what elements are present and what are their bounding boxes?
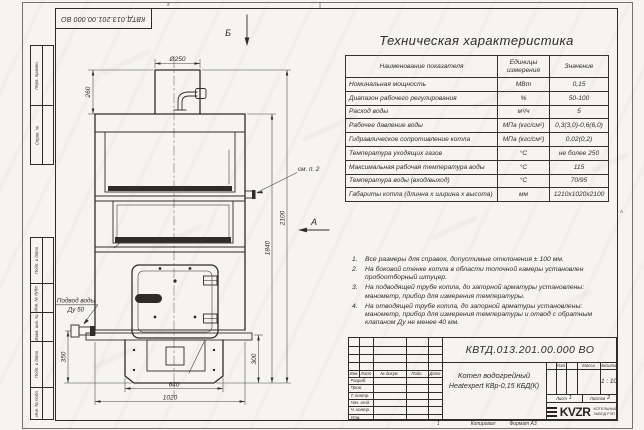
furnace-door — [132, 265, 218, 338]
scale-label: Масштаб — [600, 362, 618, 369]
product-name-line2: Heatexpert КВр-0,15 КБД(К) — [442, 382, 546, 390]
callout-see-note: см. п. 2 — [298, 166, 320, 173]
mass-label: Масса — [577, 362, 600, 369]
water-supply-dn: Ду 50 — [67, 307, 85, 314]
view-arrows: Б А — [225, 15, 329, 232]
spec-header-row: Наименование показателя Единицы измерени… — [346, 56, 609, 78]
logo-bars-icon — [547, 407, 557, 417]
col-units-header: Единицы измерения — [498, 56, 550, 78]
col-podp: Подп. — [406, 370, 428, 377]
grid-line — [373, 338, 374, 421]
title-block: Изм. Лист № докум. Подп. Дата Разраб. Пр… — [348, 337, 617, 420]
spec-units: МПа (кгс/см²) — [498, 133, 550, 147]
spec-name: Габариты котла (длинна х ширина х высота… — [346, 188, 498, 202]
sheet-cell: Лист 1 — [546, 394, 582, 402]
spec-name: Диапазон рабочего регулирования — [346, 91, 498, 105]
note-item: На боковой стенке котла в области топочн… — [350, 266, 610, 283]
product-name-line1: Котел водогрейный — [442, 371, 546, 380]
drawing-sheet: КВТД.013.201.00.000 ВО 2 А Перв. примен.… — [0, 0, 644, 430]
note-item: На подводящей трубе котла, до запорной а… — [350, 284, 610, 301]
sign-row-nkontr: Н. контр. — [351, 406, 372, 413]
spec-row: Габариты котла (длинна х ширина х высота… — [346, 188, 609, 202]
spec-row: Диапазон рабочего регулирования%50-100 — [346, 91, 609, 105]
product-name: Котел водогрейный Heatexpert КВр-0,15 КБ… — [442, 362, 546, 421]
door-hinge — [204, 314, 218, 323]
company-logo: KVZR КОТЕЛЬНЫЙ ЗАВОД РЭП — [546, 402, 618, 421]
spec-name: Расход воды — [346, 105, 498, 119]
dim-total-height: 2100 — [280, 210, 287, 226]
spec-value: 0,02(0,2) — [550, 133, 609, 147]
spec-row: Расход водым³/ч5 — [346, 105, 609, 119]
spec-value: 0,3(3,0)-0,6(6,0) — [550, 119, 609, 133]
spec-value: не более 250 — [550, 146, 609, 160]
door-handle — [135, 294, 162, 303]
technical-notes: Все размеры для справок, допустимые откл… — [350, 256, 610, 329]
spec-units: °С — [498, 146, 550, 160]
spec-value: 1210х1020х2100 — [550, 188, 609, 202]
doc-number: КВТД.013.201.00.000 ВО — [442, 338, 618, 362]
spec-units: МПа (кгс/см²) — [498, 119, 550, 133]
sampling-fitting — [245, 190, 256, 199]
grid-line — [349, 354, 442, 355]
spec-value: 115 — [550, 160, 609, 174]
logo-subtitle-line2: ЗАВОД РЭП — [593, 412, 617, 417]
loading-door — [113, 201, 233, 248]
dim-body-height: 1840 — [265, 240, 272, 255]
water-supply-label: Подвод воды — [57, 297, 96, 305]
spec-units: % — [498, 91, 550, 105]
spec-table-title: Техническая характеристика — [345, 33, 608, 48]
spec-name: Максимальная рабочая температура воды — [346, 160, 498, 174]
spec-row: Рабочее давление водыМПа (кгс/см²)0,3(3,… — [346, 119, 609, 133]
chimney — [155, 70, 206, 114]
spec-row: Температура воды (вход/выход)°С70/95 — [346, 174, 609, 188]
sheet-label: Лист — [556, 396, 567, 401]
spec-value: 70/95 — [550, 174, 609, 188]
col-name-header: Наименование показателя — [346, 56, 498, 78]
view-label-b: Б — [225, 28, 231, 38]
spec-value: 5 — [550, 105, 609, 119]
spec-units: м³/ч — [498, 105, 550, 119]
sign-row-prov: Пров. — [351, 384, 372, 391]
logo-subtitle: КОТЕЛЬНЫЙ ЗАВОД РЭП — [593, 407, 617, 416]
sign-row-razrab: Разраб. — [351, 377, 372, 384]
spec-value: 0,15 — [550, 78, 609, 92]
sheets-label: Листов — [590, 396, 605, 401]
col-value-header: Значение — [550, 56, 609, 78]
lit-label: Лит. — [546, 362, 577, 369]
format-label: Формат А3 — [502, 421, 544, 427]
spec-row: Гидравлическое сопротивление котлаМПа (к… — [346, 133, 609, 147]
sheets-cell: Листов 2 — [582, 394, 618, 402]
spec-value: 50-100 — [550, 91, 609, 105]
col-izm: Изм. — [349, 370, 359, 377]
logo-text: KVZR — [560, 405, 591, 419]
dim-chimney-height: 260 — [85, 86, 92, 98]
fold-mark: 1 — [437, 421, 440, 427]
sign-row-utv: Утв. — [351, 414, 372, 421]
spec-name: Температура воды (вход/выход) — [346, 174, 498, 188]
spec-name: Рабочее давление воды — [346, 119, 498, 133]
col-list: Лист — [359, 370, 373, 377]
boiler-body — [86, 114, 252, 340]
spec-name: Номинальная мощность — [346, 78, 498, 92]
spec-row: Максимальная рабочая температура воды°С1… — [346, 160, 609, 174]
spec-table: Наименование показателя Единицы измерени… — [345, 55, 609, 202]
grid-line — [406, 338, 407, 421]
col-data: Дата — [428, 370, 442, 377]
spec-units: мм — [498, 188, 550, 202]
door-hinge — [204, 276, 218, 285]
spec-row: Температура уходящих газов°Сне более 250 — [346, 146, 609, 160]
spec-name: Температура уходящих газов — [346, 146, 498, 160]
sheet-value: 1 — [569, 395, 572, 401]
spec-units: °С — [498, 174, 550, 188]
spec-name: Гидравлическое сопротивление котла — [346, 133, 498, 147]
dim-base-width: 640 — [169, 382, 180, 389]
dim-base-height: 300 — [251, 353, 258, 364]
sign-row-tkontr: Т. контр. — [351, 392, 372, 399]
spec-units: °С — [498, 160, 550, 174]
view-label-a: А — [310, 217, 317, 227]
sheets-value: 2 — [607, 395, 610, 401]
dim-inlet-height: 350 — [61, 351, 68, 362]
note-item: На отводящей трубе котла, до запорной ар… — [350, 303, 610, 328]
dim-total-width: 1020 — [163, 395, 178, 402]
sign-row-nachotd: Нач. отд. — [351, 399, 372, 406]
water-inlet-pipe — [71, 325, 95, 337]
dim-chimney-dia: Ø250 — [169, 56, 186, 63]
spec-row: Номинальная мощностьМВт0,15 — [346, 78, 609, 92]
grid-line — [349, 346, 442, 347]
copy-label: Копировал — [462, 421, 504, 427]
scale-value: 1 : 10 — [600, 369, 618, 394]
col-docnum: № докум. — [373, 370, 406, 377]
note-item: Все размеры для справок, допустимые откл… — [350, 256, 610, 264]
spec-units: МВт — [498, 78, 550, 92]
grid-line — [428, 338, 429, 421]
